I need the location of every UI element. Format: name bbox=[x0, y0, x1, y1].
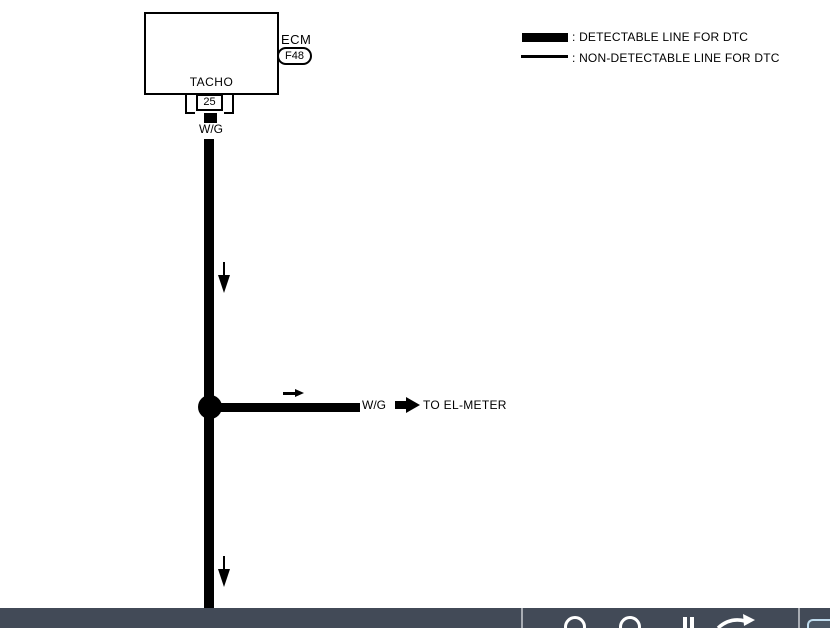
component-label: ECM bbox=[281, 32, 311, 47]
bottom-toolbar bbox=[0, 608, 830, 628]
zoom-in-icon[interactable] bbox=[619, 616, 641, 628]
zoom-out-icon[interactable] bbox=[564, 616, 586, 628]
legend-detectable-swatch bbox=[522, 33, 568, 42]
legend-non-detectable-swatch bbox=[521, 55, 568, 58]
branch-wire-horizontal bbox=[214, 403, 360, 412]
toolbar-divider bbox=[521, 608, 523, 628]
branch-wire-color-label: W/G bbox=[362, 398, 386, 412]
main-wire-vertical bbox=[204, 139, 214, 608]
terminal-name-label: TACHO bbox=[144, 75, 279, 89]
connector-bracket-right bbox=[224, 95, 234, 114]
pin-number-box: 25 bbox=[196, 94, 223, 111]
highlighted-button-corner[interactable] bbox=[807, 619, 830, 628]
wiring-diagram-page: TACHO ECM F48 25 W/G W/G TO EL-METER : D… bbox=[0, 0, 830, 628]
branch-destination-label: TO EL-METER bbox=[423, 398, 507, 412]
legend-non-detectable-label: : NON-DETECTABLE LINE FOR DTC bbox=[572, 51, 780, 65]
flow-arrow-right-icon bbox=[283, 389, 304, 398]
branch-direction-arrow-icon bbox=[395, 397, 420, 413]
redo-arrow-icon[interactable] bbox=[716, 614, 756, 628]
legend-detectable-label: : DETECTABLE LINE FOR DTC bbox=[572, 30, 748, 44]
flow-arrow-down-icon bbox=[218, 262, 230, 293]
pause-bars-icon[interactable] bbox=[682, 617, 696, 628]
flow-arrow-down-icon bbox=[218, 556, 230, 587]
connector-bracket-left bbox=[185, 95, 195, 114]
connector-code-badge: F48 bbox=[277, 47, 312, 65]
toolbar-divider bbox=[798, 608, 800, 628]
wire-color-label: W/G bbox=[185, 122, 237, 136]
